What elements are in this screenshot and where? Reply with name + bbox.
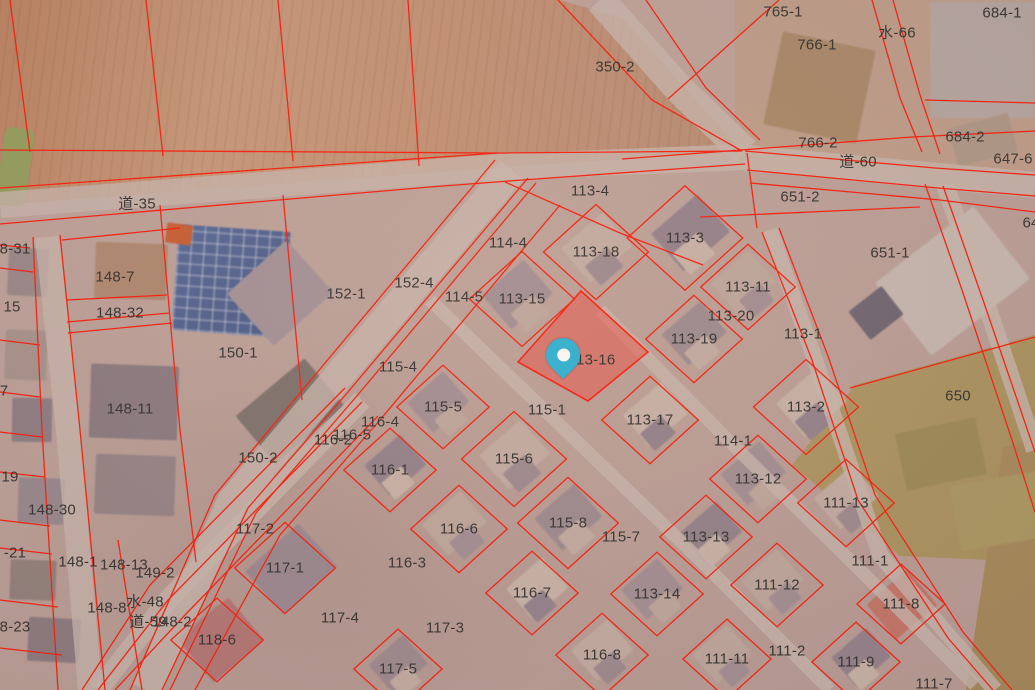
parcel-label-113-3: 113-3 — [666, 231, 704, 246]
parcel-label-148-7: 148-7 — [95, 270, 134, 285]
parcel-label-684-2: 684-2 — [945, 130, 984, 145]
parcel-label-111-7: 111-7 — [915, 677, 952, 690]
road-label-道-35: 道-35 — [118, 197, 155, 212]
parcel-label-114-4: 114-4 — [489, 236, 527, 251]
parcel-label-113-18: 113-18 — [573, 245, 620, 260]
pin-inner-dot — [554, 346, 572, 364]
parcel-label-766-2: 766-2 — [798, 136, 837, 151]
building — [12, 398, 53, 443]
parcel-label-111-1: 111-1 — [851, 554, 888, 569]
parcel-label-148-8: 148-8 — [87, 601, 126, 616]
building — [94, 454, 176, 517]
parcel-label-114-5: 114-5 — [445, 290, 483, 305]
parcel-label-115-6: 115-6 — [495, 452, 533, 467]
parcel-label-19: 19 — [1, 470, 18, 485]
parcel-label-152-4: 152-4 — [394, 276, 433, 291]
grass-patch — [0, 126, 35, 207]
parcel-label-115-1: 115-1 — [528, 403, 566, 418]
parcel-label-114-1: 114-1 — [714, 434, 752, 449]
parcel-label-766-1: 766-1 — [797, 38, 836, 53]
parcel-label-113-17: 113-17 — [627, 413, 674, 428]
parcel-label-150-2: 150-2 — [238, 451, 277, 466]
road-label-道-60: 道-60 — [839, 155, 876, 170]
parcel-label-115-5: 115-5 — [424, 400, 462, 415]
parcel-label-651-1: 651-1 — [870, 246, 909, 261]
water-label-水-66: 水-66 — [878, 26, 915, 41]
parcel-label-113-1: 113-1 — [784, 327, 822, 342]
building — [165, 222, 194, 245]
farmland-zone — [0, 0, 760, 230]
parcel-label-152-1: 152-1 — [326, 287, 365, 302]
parcel-label-684-1: 684-1 — [982, 6, 1021, 21]
parcel-label-116-2: 116-2 — [314, 433, 352, 448]
parcel-label-113-13: 113-13 — [683, 530, 730, 545]
parcel-label-8-31: 8-31 — [0, 242, 30, 257]
parcel-label-148-30: 148-30 — [28, 503, 76, 518]
map-canvas[interactable]: 765-1766-1684-1水-66350-2766-2道-60684-264… — [0, 0, 1035, 690]
parcel-label-148-2: 148-2 — [152, 615, 191, 630]
parcel-label-117-1: 117-1 — [266, 561, 304, 576]
parcel-label-111-13: 111-13 — [823, 496, 869, 511]
parcel-label-111-9: 111-9 — [837, 655, 874, 670]
parcel-label-149-2: 149-2 — [135, 566, 174, 581]
parcel-label-647-6: 647-6 — [993, 152, 1032, 167]
parcel-label-113-15: 113-15 — [499, 292, 546, 307]
parcel-label-113-12: 113-12 — [735, 472, 782, 487]
parcel-label-64: 64 — [1022, 216, 1035, 231]
parcel-label-117-5: 117-5 — [379, 662, 417, 677]
building — [9, 559, 56, 601]
building — [875, 206, 1030, 355]
parcel-label-8-23: 8-23 — [0, 620, 30, 635]
parcel-label-113-2: 113-2 — [787, 400, 825, 415]
parcel-label-115-8: 115-8 — [549, 516, 587, 531]
parcel-label-111-2: 111-2 — [768, 644, 805, 659]
building — [27, 617, 81, 664]
parcel-label-150-1: 150-1 — [218, 346, 257, 361]
parcel-label-117-4: 117-4 — [321, 611, 359, 626]
parcel-label-117-3: 117-3 — [426, 621, 464, 636]
parcel-label-113-14: 113-14 — [634, 587, 681, 602]
parcel-label-148-11: 148-11 — [107, 402, 154, 417]
parcel-label-113-20: 113-20 — [708, 309, 755, 324]
parcel-label-111-12: 111-12 — [754, 578, 800, 593]
building — [895, 417, 987, 491]
parcel-label-116-1: 116-1 — [371, 463, 409, 478]
parcel-label-650: 650 — [945, 389, 971, 404]
parcel-label-111-11: 111-11 — [705, 652, 750, 667]
parcel-label-7: 7 — [0, 384, 8, 399]
parcel-label--21: -21 — [4, 546, 26, 561]
building — [950, 471, 1035, 552]
parcel-label-116-7: 116-7 — [513, 586, 551, 601]
parcel-label-117-2: 117-2 — [236, 522, 274, 537]
parcel-label-765-1: 765-1 — [763, 5, 802, 20]
location-pin-icon[interactable] — [539, 331, 587, 379]
parcel-label-350-2: 350-2 — [595, 60, 634, 75]
parcel-label-651-2: 651-2 — [780, 190, 819, 205]
building — [4, 329, 48, 380]
parcel-label-113-11: 113-11 — [725, 280, 771, 295]
parcel-label-15: 15 — [3, 300, 20, 315]
parcel-label-115-4: 115-4 — [379, 360, 417, 375]
parcel-label-148-32: 148-32 — [96, 306, 144, 321]
parcel-label-118-6: 118-6 — [198, 633, 236, 648]
parcel-label-116-8: 116-8 — [583, 648, 621, 663]
parcel-label-116-6: 116-6 — [440, 522, 478, 537]
water-label-水-48: 水-48 — [126, 595, 163, 610]
parcel-label-113-19: 113-19 — [671, 332, 718, 347]
parcel-label-116-3: 116-3 — [388, 556, 426, 571]
parcel-label-115-7: 115-7 — [602, 530, 640, 545]
parcel-label-113-4: 113-4 — [571, 184, 609, 199]
parcel-label-111-8: 111-8 — [882, 597, 919, 612]
parcel-label-148-1: 148-1 — [58, 555, 97, 570]
